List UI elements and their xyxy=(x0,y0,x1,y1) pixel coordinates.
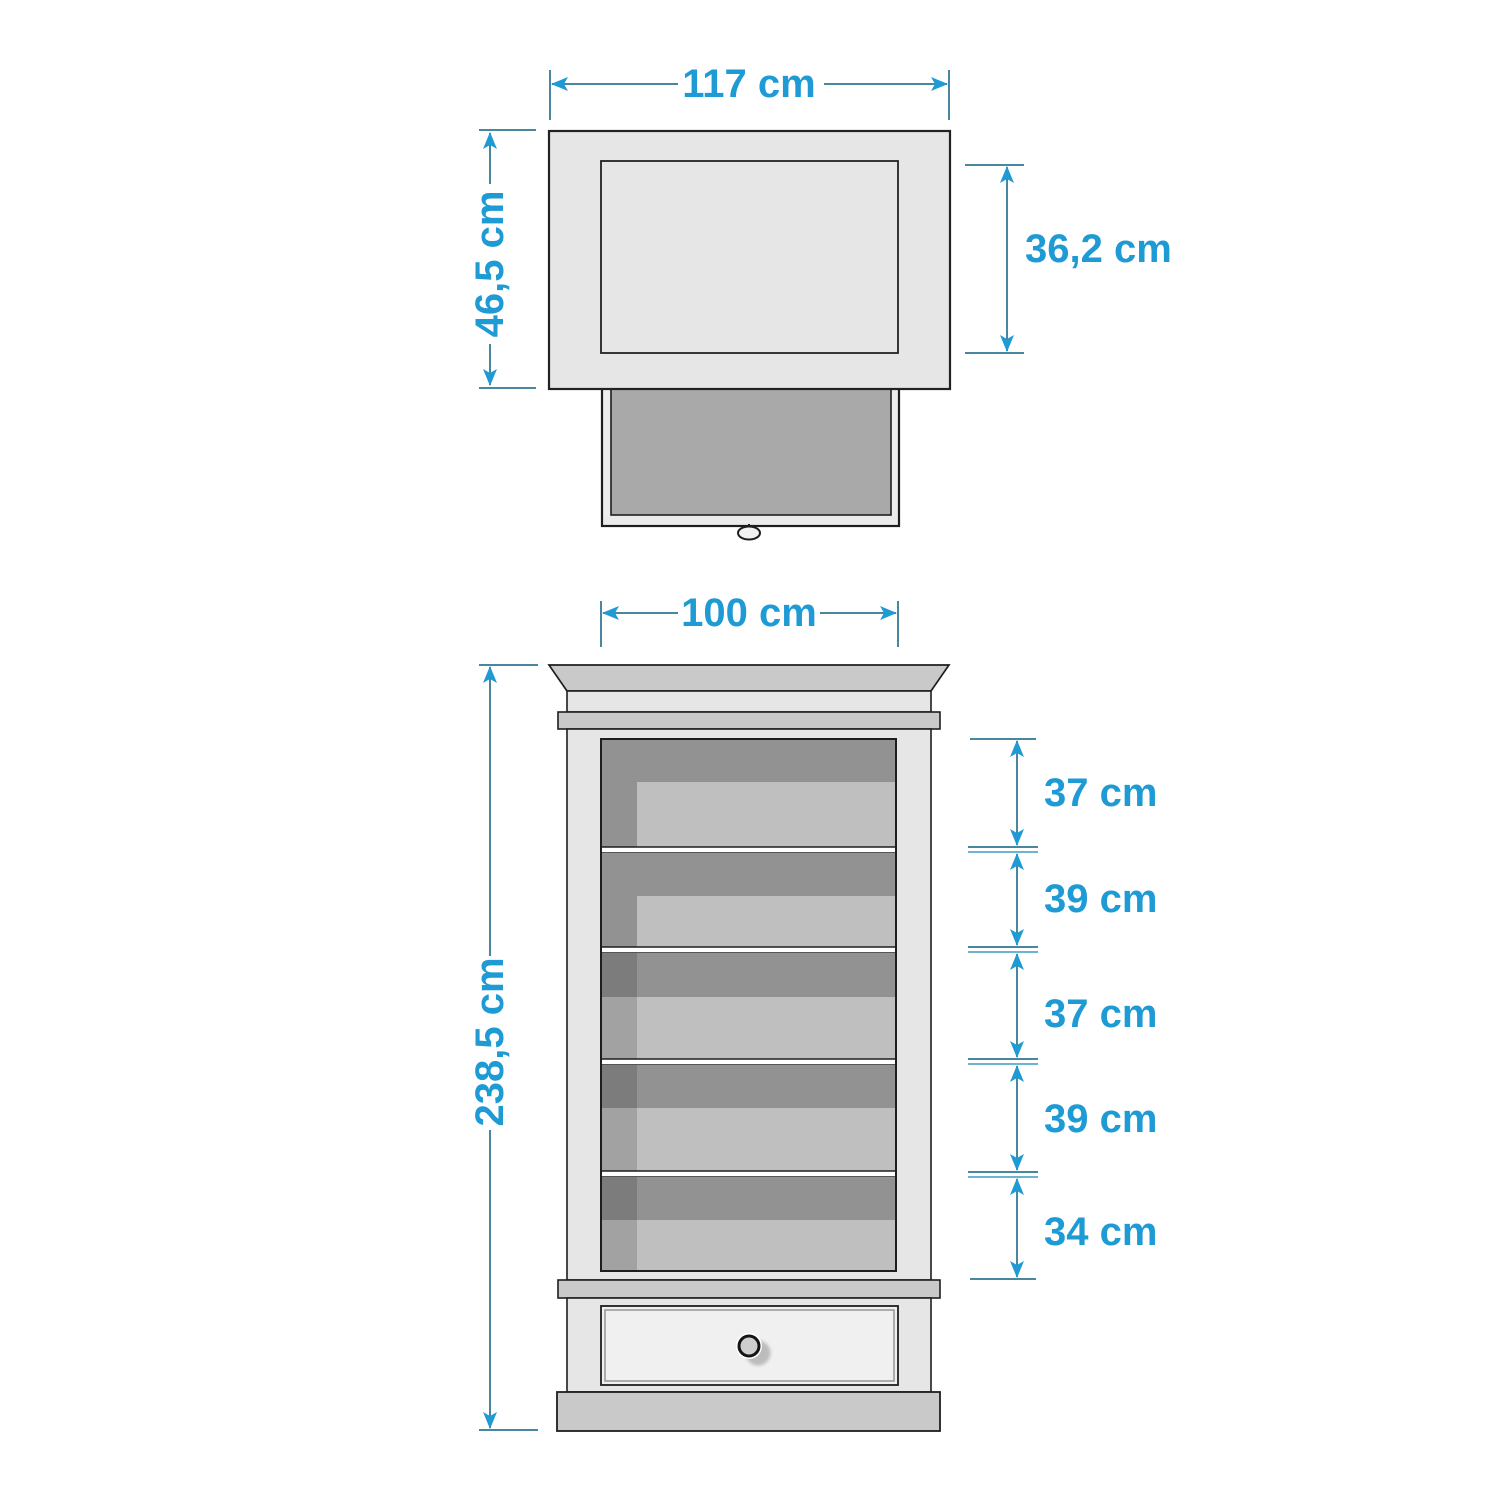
svg-text:36,2 cm: 36,2 cm xyxy=(1025,227,1172,271)
svg-text:46,5 cm: 46,5 cm xyxy=(468,191,512,338)
svg-text:39 cm: 39 cm xyxy=(1044,877,1157,921)
svg-text:37 cm: 37 cm xyxy=(1044,771,1157,815)
svg-text:100 cm: 100 cm xyxy=(681,591,817,635)
svg-text:117 cm: 117 cm xyxy=(682,62,815,106)
svg-text:37 cm: 37 cm xyxy=(1044,992,1157,1036)
svg-text:238,5 cm: 238,5 cm xyxy=(468,957,512,1126)
svg-text:34 cm: 34 cm xyxy=(1044,1210,1157,1254)
svg-text:39 cm: 39 cm xyxy=(1044,1097,1157,1141)
